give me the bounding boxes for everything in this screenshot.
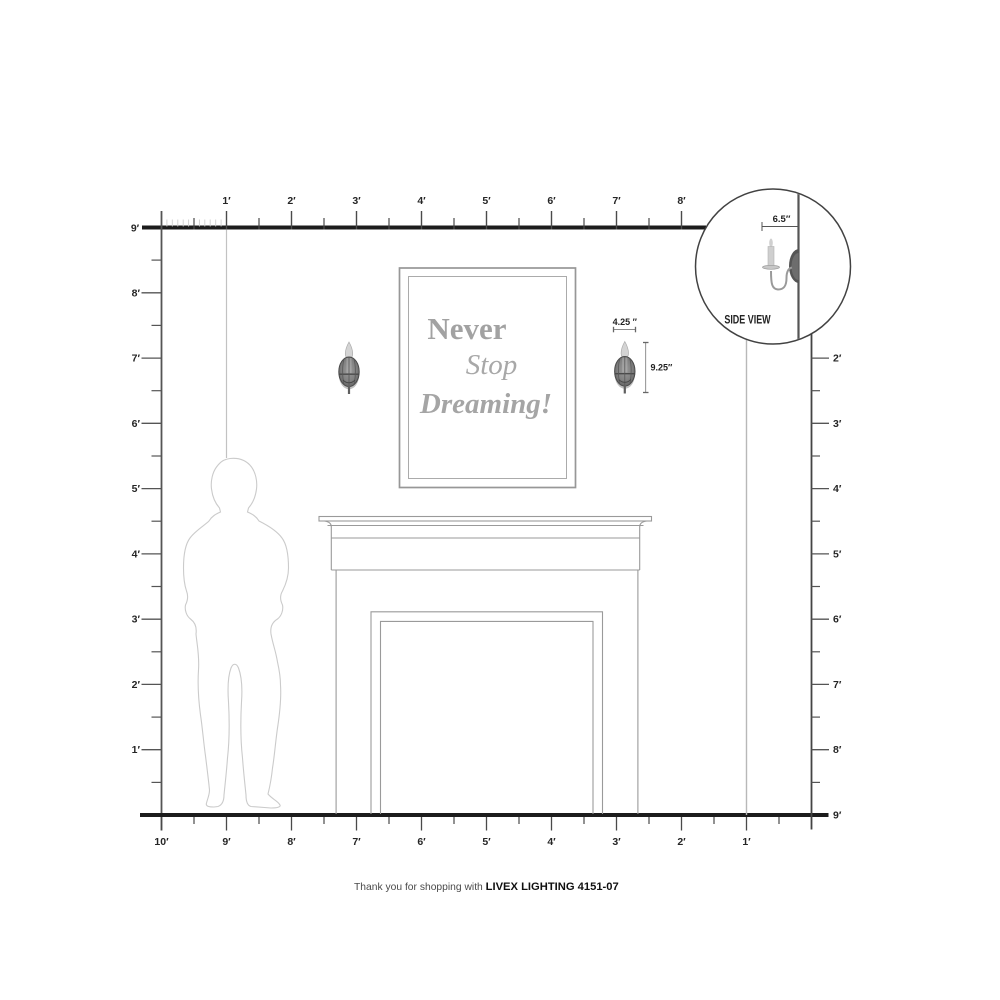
svg-text:9′: 9′ (131, 223, 140, 235)
svg-text:6.5″: 6.5″ (773, 214, 791, 225)
svg-text:4′: 4′ (132, 548, 141, 560)
svg-text:9.25″: 9.25″ (651, 363, 674, 373)
svg-text:1′: 1′ (222, 195, 231, 207)
svg-text:4.25 ″: 4.25 ″ (613, 317, 638, 327)
svg-text:7′: 7′ (352, 836, 361, 848)
svg-text:3′: 3′ (833, 418, 842, 430)
svg-text:1′: 1′ (742, 836, 751, 848)
svg-text:5′: 5′ (132, 483, 141, 495)
svg-text:7′: 7′ (612, 195, 621, 207)
svg-text:4′: 4′ (833, 483, 842, 495)
svg-text:6′: 6′ (833, 614, 842, 626)
svg-text:1′: 1′ (132, 744, 141, 756)
svg-text:8′: 8′ (287, 836, 296, 848)
svg-text:9′: 9′ (222, 836, 231, 848)
svg-text:Thank you for shopping with LI: Thank you for shopping with LIVEX LIGHTI… (354, 881, 619, 893)
svg-text:5′: 5′ (482, 836, 491, 848)
svg-text:2′: 2′ (833, 353, 842, 365)
svg-text:Stop: Stop (466, 349, 518, 381)
svg-text:5′: 5′ (833, 548, 842, 560)
svg-text:8′: 8′ (132, 287, 141, 299)
svg-text:6′: 6′ (417, 836, 426, 848)
svg-text:SIDE VIEW: SIDE VIEW (724, 315, 771, 327)
svg-text:3′: 3′ (132, 614, 141, 626)
svg-text:7′: 7′ (833, 679, 842, 691)
svg-text:Never: Never (427, 311, 506, 346)
svg-text:Dreaming!: Dreaming! (419, 388, 552, 420)
svg-text:5′: 5′ (482, 195, 491, 207)
svg-text:2′: 2′ (677, 836, 686, 848)
svg-text:6′: 6′ (547, 195, 556, 207)
svg-text:2′: 2′ (132, 679, 141, 691)
svg-text:2′: 2′ (287, 195, 296, 207)
svg-text:4′: 4′ (417, 195, 426, 207)
svg-text:10′: 10′ (154, 836, 169, 848)
svg-text:4′: 4′ (547, 836, 556, 848)
svg-text:7′: 7′ (132, 353, 141, 365)
svg-text:9′: 9′ (833, 810, 842, 822)
svg-text:3′: 3′ (352, 195, 361, 207)
svg-text:6′: 6′ (132, 418, 141, 430)
svg-text:8′: 8′ (677, 195, 686, 207)
svg-text:3′: 3′ (612, 836, 621, 848)
svg-text:8′: 8′ (833, 744, 842, 756)
